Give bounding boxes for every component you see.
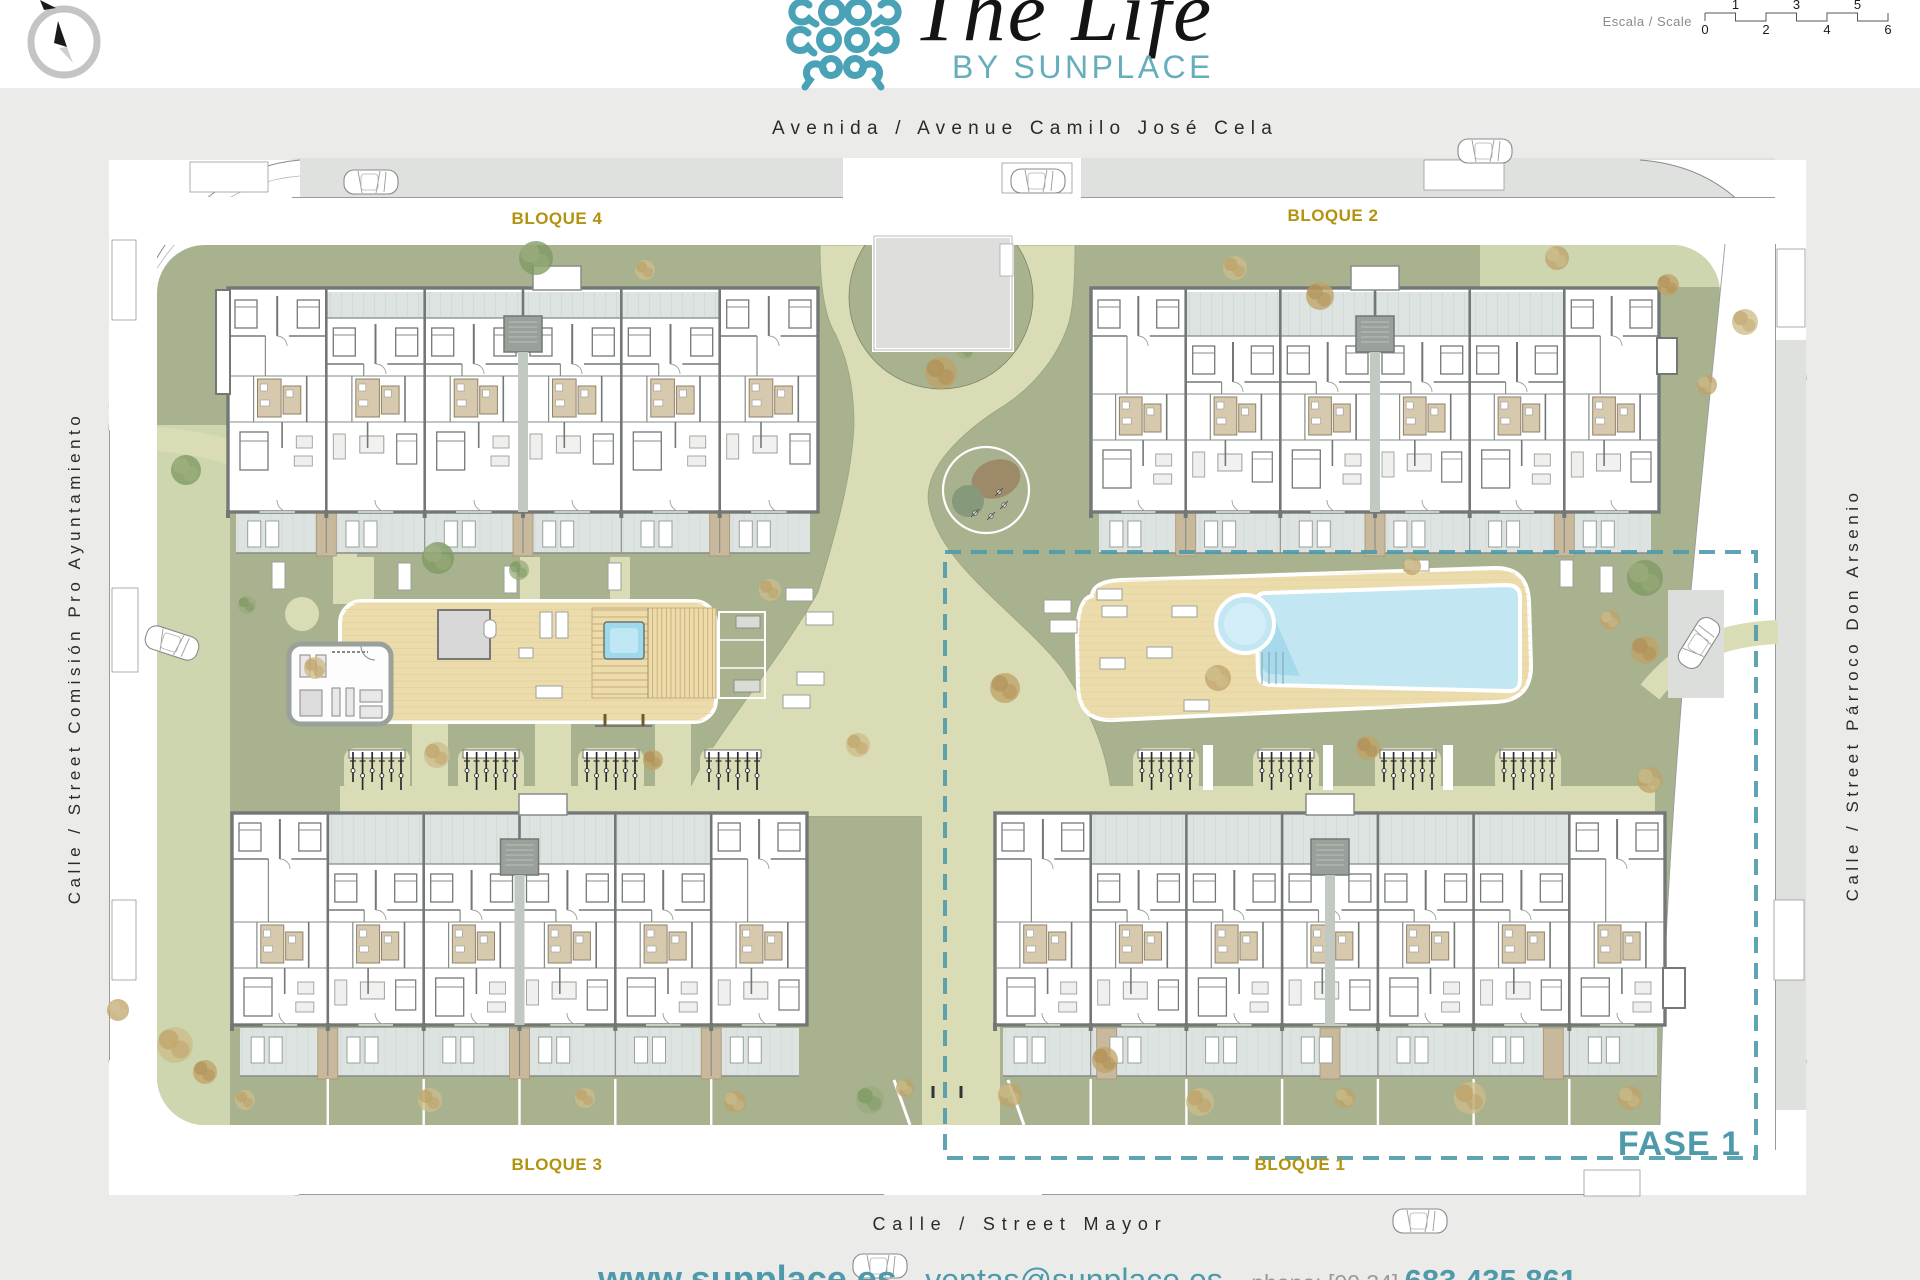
svg-text:Escala / Scale: Escala / Scale [1603,14,1692,29]
svg-text:BLOQUE 4: BLOQUE 4 [512,209,603,228]
svg-text:BY SUNPLACE: BY SUNPLACE [952,49,1214,85]
svg-text:1: 1 [1732,0,1739,12]
svg-text:FASE 1: FASE 1 [1618,1125,1741,1163]
svg-text:Calle / Street Mayor: Calle / Street Mayor [872,1214,1167,1234]
svg-text:0: 0 [1701,22,1708,37]
svg-text:4: 4 [1823,22,1830,37]
svg-text:Calle / Street Comisión Pro Ay: Calle / Street Comisión Pro Ayuntamiento [65,412,84,904]
svg-text:Calle / Street Párroco Don Ars: Calle / Street Párroco Don Arsenio [1843,489,1862,902]
svg-text:BLOQUE 1: BLOQUE 1 [1255,1155,1346,1174]
svg-text:6: 6 [1884,22,1891,37]
svg-text:5: 5 [1854,0,1861,12]
svg-text:BLOQUE 3: BLOQUE 3 [512,1155,603,1174]
svg-text:Avenida / Avenue Camilo José C: Avenida / Avenue Camilo José Cela [772,118,1278,139]
svg-text:2: 2 [1762,22,1769,37]
svg-text:3: 3 [1793,0,1800,12]
svg-text:BLOQUE 2: BLOQUE 2 [1288,206,1379,225]
